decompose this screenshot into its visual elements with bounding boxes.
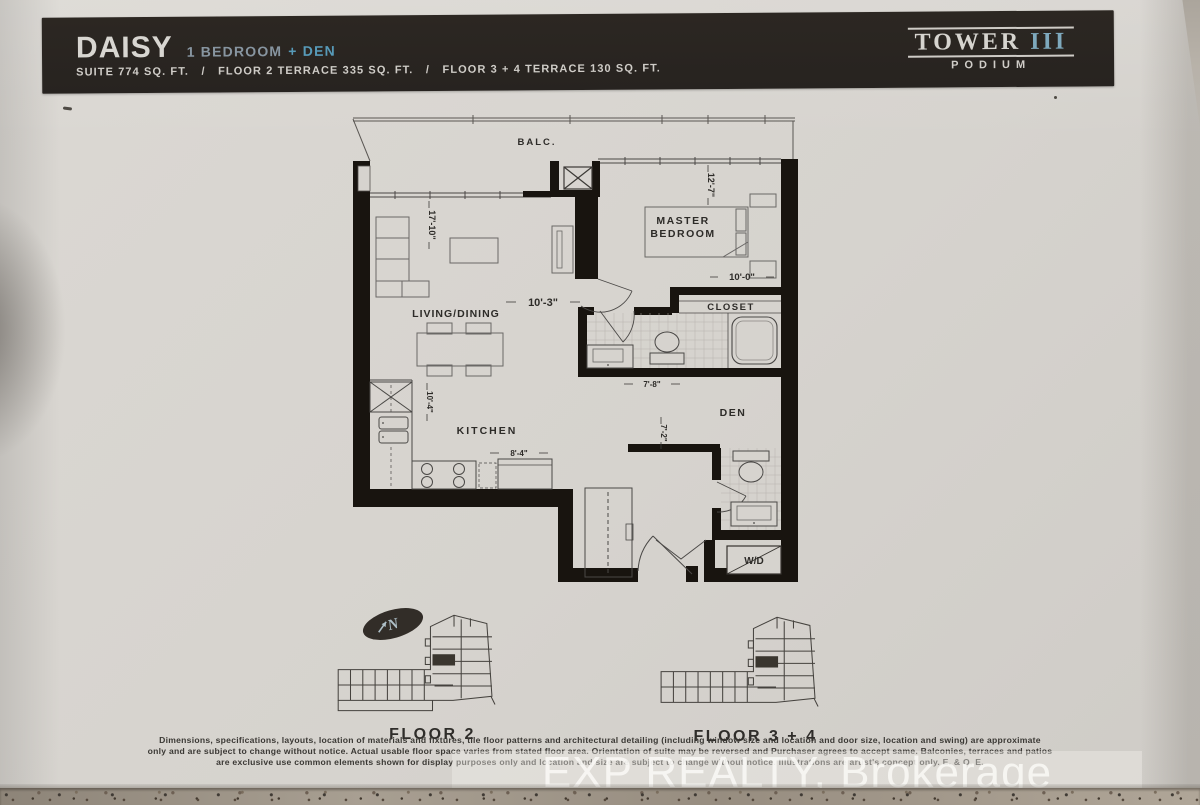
entry-door — [638, 536, 692, 574]
bathroom-vanity — [587, 345, 633, 368]
dim-kitchen-depth: 10'-4" — [425, 391, 434, 413]
dining-set — [417, 323, 503, 376]
tower-subtitle: PODIUM — [906, 59, 1076, 72]
dim-kitchen-width: 8'-4" — [510, 449, 527, 458]
floorplan-sheet: DAISY 1 BEDROOM+ DEN SUITE 774 SQ. FT. /… — [0, 0, 1200, 805]
tower-logo: TOWER III PODIUM — [906, 27, 1076, 72]
tower-numeral: III — [1030, 29, 1067, 55]
keyplan-floor2 — [330, 606, 535, 724]
dim-living-depth: 17'-10" — [427, 210, 437, 239]
kitchen-island — [498, 459, 552, 489]
photo-corner-shadow — [1178, 0, 1200, 150]
balcony-label: BALC. — [517, 137, 556, 148]
wall-window-notch — [358, 166, 370, 191]
bathtub — [728, 313, 781, 368]
entry-closet — [585, 488, 633, 577]
dim-living-width: 10'-3" — [528, 297, 558, 309]
den-label: DEN — [720, 407, 747, 419]
highlighted-unit — [756, 656, 779, 667]
living-label: LIVING/DINING — [412, 308, 500, 320]
kitchen-label: KITCHEN — [457, 425, 518, 437]
coffee-table — [450, 238, 498, 263]
master-label-1: MASTER — [656, 215, 709, 227]
header-left: DAISY 1 BEDROOM+ DEN SUITE 774 SQ. FT. /… — [76, 29, 661, 78]
plan-type: 1 BEDROOM+ DEN — [187, 42, 336, 59]
tv-console — [552, 226, 573, 273]
countertop-surface — [0, 788, 1200, 805]
highlighted-unit — [433, 654, 456, 665]
toilet — [650, 332, 684, 364]
paper-speck — [1054, 96, 1057, 99]
balcony-railing — [353, 115, 795, 161]
toilet-2 — [733, 451, 769, 482]
unit-floorplan: BALC. LIVING/DINING KITCHEN MASTER BEDRO… — [340, 95, 820, 615]
sink-2 — [731, 502, 777, 526]
closet-label: CLOSET — [707, 302, 755, 313]
disclaimer-line-1: Dimensions, specifications, layouts, loc… — [30, 735, 1170, 746]
tower-name: TOWER — [915, 29, 1022, 56]
keyplan-floor34 — [648, 608, 863, 726]
den-tag: + DEN — [288, 42, 336, 58]
wd-label: W/D — [744, 556, 763, 567]
bedroom-count: 1 BEDROOM — [187, 43, 283, 60]
dim-bath-width: 7'-8" — [643, 380, 660, 389]
kitchen-sink — [379, 417, 408, 443]
sofa — [376, 217, 429, 297]
dim-master-width: 10'-0" — [729, 272, 755, 283]
master-label-2: BEDROOM — [650, 228, 715, 240]
shaft-box — [564, 167, 592, 189]
dim-master-depth: 12'-7" — [706, 173, 716, 197]
suite-specs: SUITE 774 SQ. FT. / FLOOR 2 TERRACE 335 … — [76, 62, 661, 78]
paper-speck — [63, 106, 72, 110]
header-band: DAISY 1 BEDROOM+ DEN SUITE 774 SQ. FT. /… — [42, 10, 1115, 93]
laundry-bifold-door — [656, 540, 706, 559]
plan-name: DAISY — [76, 32, 173, 63]
stove — [412, 461, 496, 489]
dim-den-width: 7'-2" — [659, 424, 668, 441]
